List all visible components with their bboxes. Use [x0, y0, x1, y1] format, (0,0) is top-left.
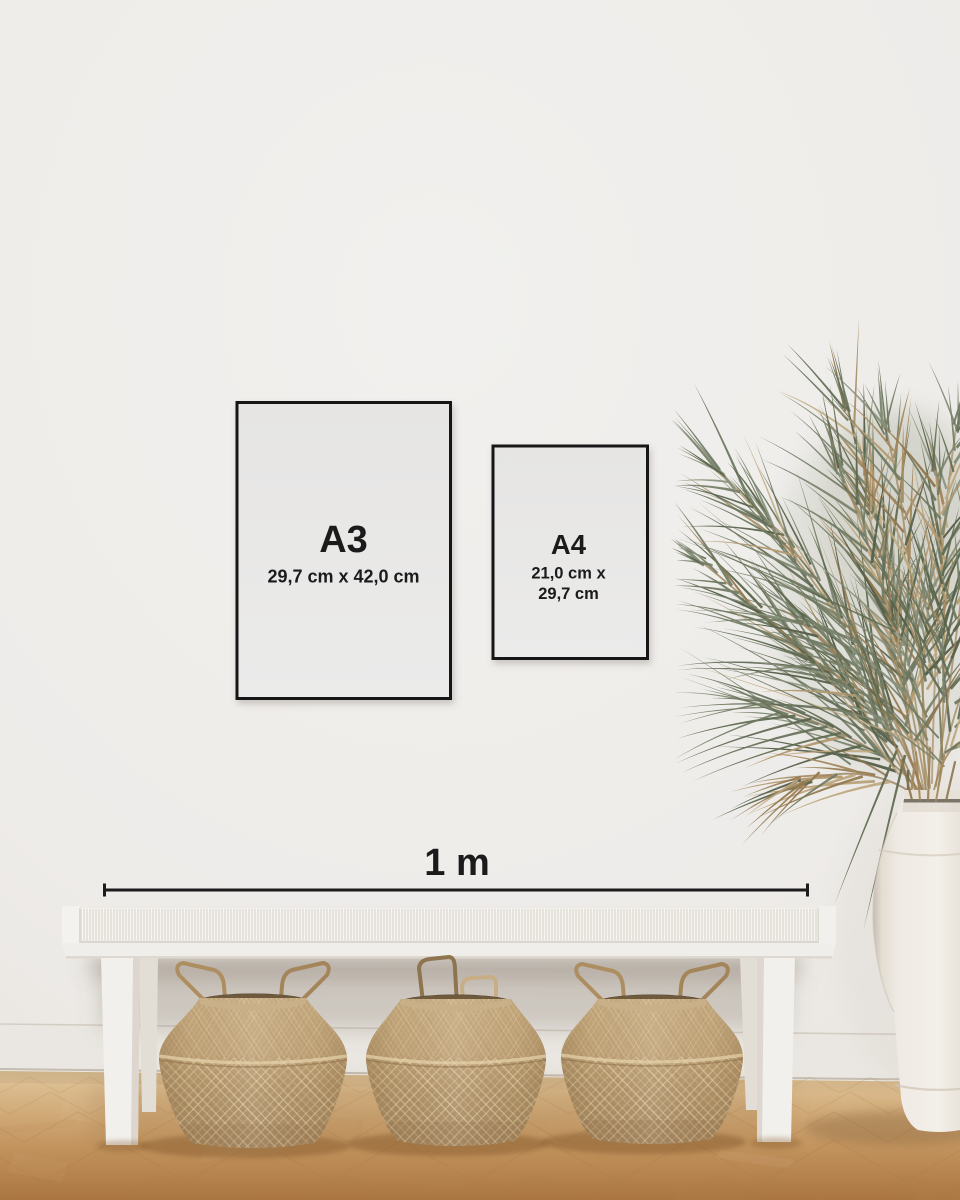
svg-text:1 m: 1 m	[424, 842, 489, 884]
svg-text:29,7 cm x 42,0 cm: 29,7 cm x 42,0 cm	[267, 567, 419, 587]
svg-text:21,0 cm x: 21,0 cm x	[531, 565, 606, 583]
svg-text:A4: A4	[551, 529, 587, 560]
svg-text:29,7 cm: 29,7 cm	[538, 585, 599, 603]
svg-text:A3: A3	[319, 519, 368, 561]
